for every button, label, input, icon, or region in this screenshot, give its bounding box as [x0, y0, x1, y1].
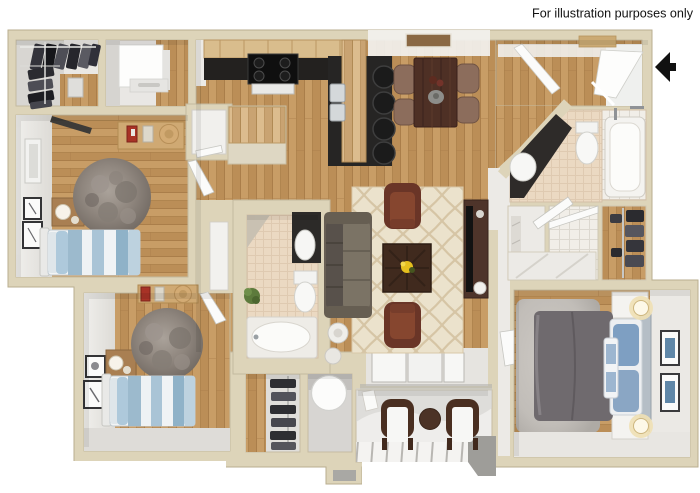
svg-text:For illustration purposes only: For illustration purposes only — [532, 7, 694, 21]
